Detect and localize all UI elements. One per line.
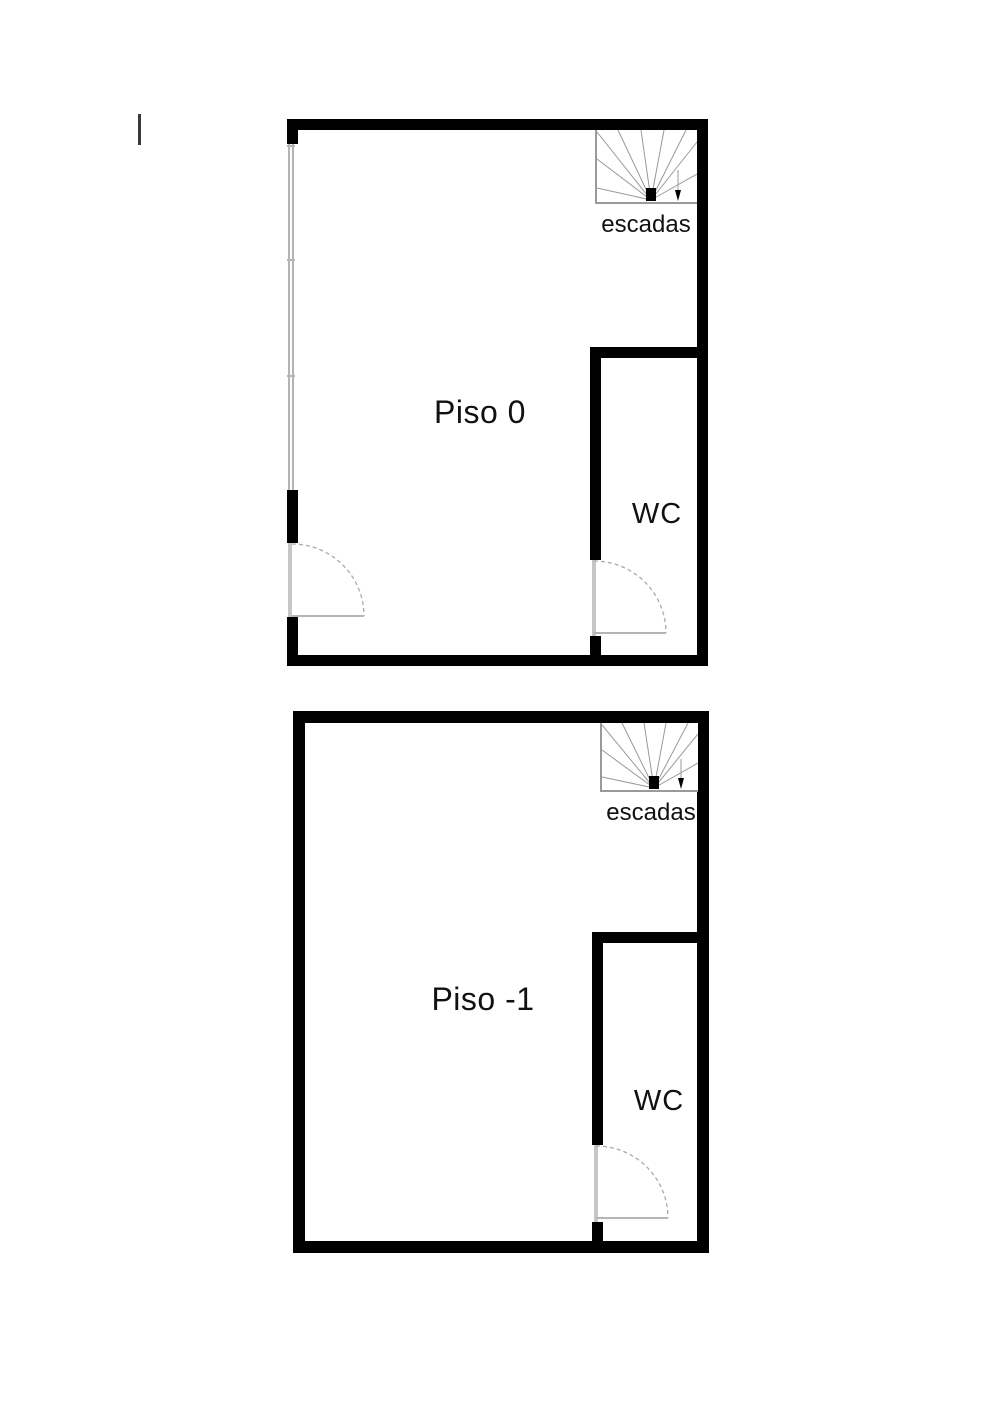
window-joint-tick — [287, 145, 295, 147]
stairs-fan-icon — [597, 130, 697, 202]
room-label-piso-0: Piso 0 — [385, 394, 575, 431]
wc-door-swing-icon — [592, 1142, 674, 1224]
wall-left — [293, 711, 305, 1253]
wall-bottom — [293, 1241, 709, 1253]
wc-wall-left — [590, 347, 601, 560]
entry-door-swing-icon — [287, 540, 369, 622]
wc-label: WC — [617, 498, 697, 531]
stairs-fan-icon — [602, 723, 698, 790]
wall-left-bottom — [287, 617, 298, 666]
stairs-newel — [649, 776, 659, 789]
wall-bottom — [287, 655, 708, 666]
wall-right — [697, 119, 708, 666]
wall-top-left-stub — [287, 119, 298, 144]
floor-piso-0: escadas Piso 0 WC — [287, 119, 708, 666]
wall-top — [293, 711, 709, 723]
floor-plan-canvas: escadas Piso 0 WC — [0, 0, 1000, 1418]
wall-top — [287, 119, 708, 130]
wc-door-swing-icon — [590, 557, 672, 639]
window-joint-tick — [287, 375, 295, 377]
window-wall — [288, 144, 294, 490]
wc-wall-top — [592, 932, 709, 943]
wall-right — [697, 711, 709, 1253]
wc-label: WC — [619, 1085, 699, 1118]
room-label-piso-minus-1: Piso -1 — [388, 981, 578, 1018]
wall-left-mid — [287, 490, 298, 543]
window-joint-tick — [287, 259, 295, 261]
stray-tick-mark — [138, 114, 141, 145]
stairs-area — [595, 130, 697, 204]
stairs-caption: escadas — [595, 211, 697, 239]
wc-wall-left-stub — [592, 1222, 603, 1253]
wc-wall-top — [590, 347, 708, 358]
stairs-newel — [646, 188, 656, 201]
stairs-caption: escadas — [600, 799, 702, 827]
stairs-area — [600, 723, 698, 792]
wc-wall-left-stub — [590, 636, 601, 666]
floor-piso-minus-1: escadas Piso -1 WC — [293, 711, 709, 1253]
wc-wall-left — [592, 932, 603, 1145]
